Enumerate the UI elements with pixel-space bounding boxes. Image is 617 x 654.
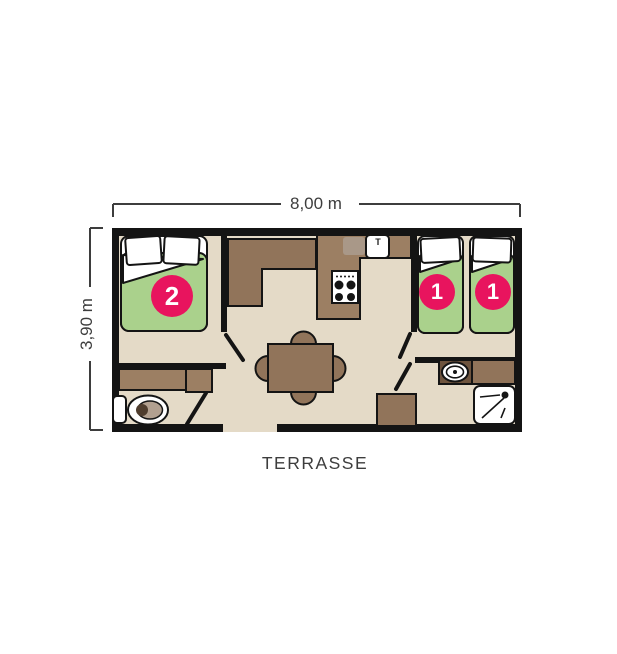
terrace-label: TERRASSE	[245, 453, 385, 474]
floorplan-page: 8,00 m 3,90 m TERRASSE 2 1 1 T	[0, 0, 617, 654]
dining-table	[268, 344, 333, 392]
single-bed-2-badge: 1	[475, 274, 511, 310]
wall-bottom-left	[112, 424, 223, 432]
width-dimension-label: 8,00 m	[266, 194, 366, 214]
depth-dimension-label: 3,90 m	[77, 284, 99, 364]
double-bed-badge: 2	[151, 275, 193, 317]
wc-cabinet-small	[186, 369, 212, 392]
sink-faucet-label: T	[369, 237, 387, 247]
bedroom-left-divider-wall	[221, 236, 227, 332]
single-bed-1-badge: 1	[419, 274, 455, 310]
stove-icon	[332, 271, 358, 303]
wall-right	[515, 228, 522, 432]
stool	[377, 394, 416, 426]
kitchen-drainboard	[343, 237, 365, 255]
toilet-icon	[113, 396, 168, 425]
shower-icon	[474, 386, 515, 424]
bathroom-sink-icon	[442, 363, 468, 382]
wc-cabinet	[119, 369, 186, 390]
bathroom-counter	[472, 360, 515, 384]
terrace-opening	[223, 424, 277, 432]
